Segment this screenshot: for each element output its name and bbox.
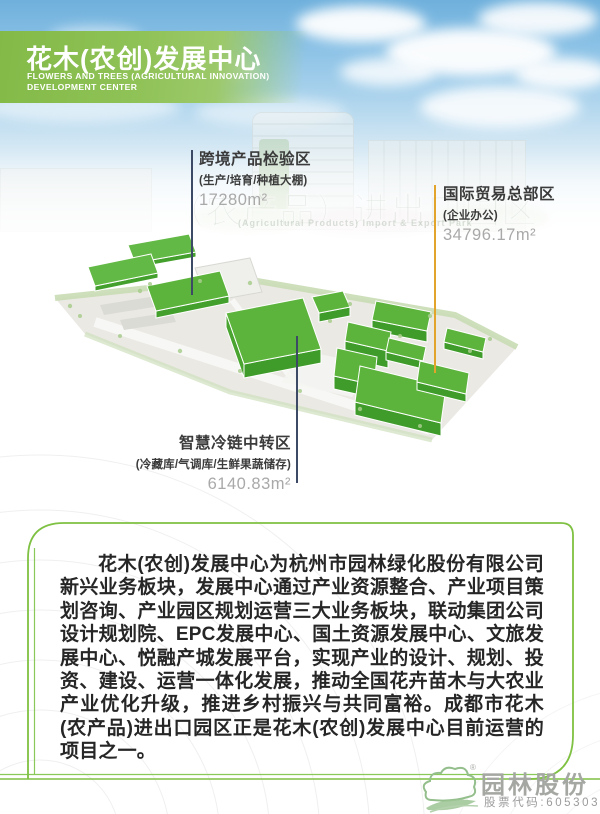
zone-name: 跨境产品检验区 xyxy=(199,147,311,169)
zone-area: 6140.83m² xyxy=(60,475,291,494)
leader-line-cold-chain xyxy=(296,336,298,483)
cloud-shape xyxy=(515,58,600,90)
description-paragraph: 花木(农创)发展中心为杭州市园林绿化股份有限公司新兴业务板块，发展中心通过产业资… xyxy=(60,553,544,764)
cloud-bonsai-logo-icon xyxy=(424,768,478,812)
zone-label-trade: 国际贸易总部区 (企业办公) 34796.17m² xyxy=(443,182,555,245)
zone-detail: (企业办公) xyxy=(443,207,555,223)
leader-line-inspection xyxy=(191,150,193,295)
brochure-page: （农产品）进出口园区 (Agricultural Products) Impor… xyxy=(0,0,600,814)
zone-detail: (冷藏库/气调库/生鲜果蔬储存) xyxy=(60,456,291,472)
zone-label-cold-chain: 智慧冷链中转区 (冷藏库/气调库/生鲜果蔬储存) 6140.83m² xyxy=(60,431,291,494)
zone-name: 智慧冷链中转区 xyxy=(60,431,291,453)
cloud-shape xyxy=(420,86,580,128)
leader-line-trade xyxy=(434,185,436,373)
zone-name: 国际贸易总部区 xyxy=(443,182,555,204)
cold-chain-building xyxy=(226,291,350,378)
title-banner: 花木(农创)发展中心 FLOWERS AND TREES (AGRICULTUR… xyxy=(0,31,310,103)
cloud-shape xyxy=(478,2,598,36)
site-ground xyxy=(55,278,517,440)
faded-sign-subtext: (Agricultural Products) Import & Export … xyxy=(238,218,473,228)
tree-dots xyxy=(68,279,492,428)
page-subtitle-line1: FLOWERS AND TREES (AGRICULTURAL INNOVATI… xyxy=(27,71,270,81)
registered-mark: ® xyxy=(470,763,476,772)
stock-code-text: 股票代码:605303 xyxy=(484,794,600,810)
page-subtitle-line2: DEVELOPMENT CENTER xyxy=(27,82,137,92)
cloud-shape xyxy=(340,58,435,86)
zone-area: 17280m² xyxy=(199,191,311,210)
zone-label-inspection: 跨境产品检验区 (生产/培育/种植大棚) 17280m² xyxy=(199,147,311,210)
zone-area: 34796.17m² xyxy=(443,226,555,245)
zone-detail: (生产/培育/种植大棚) xyxy=(199,172,311,188)
trade-cluster-buildings xyxy=(334,301,486,436)
